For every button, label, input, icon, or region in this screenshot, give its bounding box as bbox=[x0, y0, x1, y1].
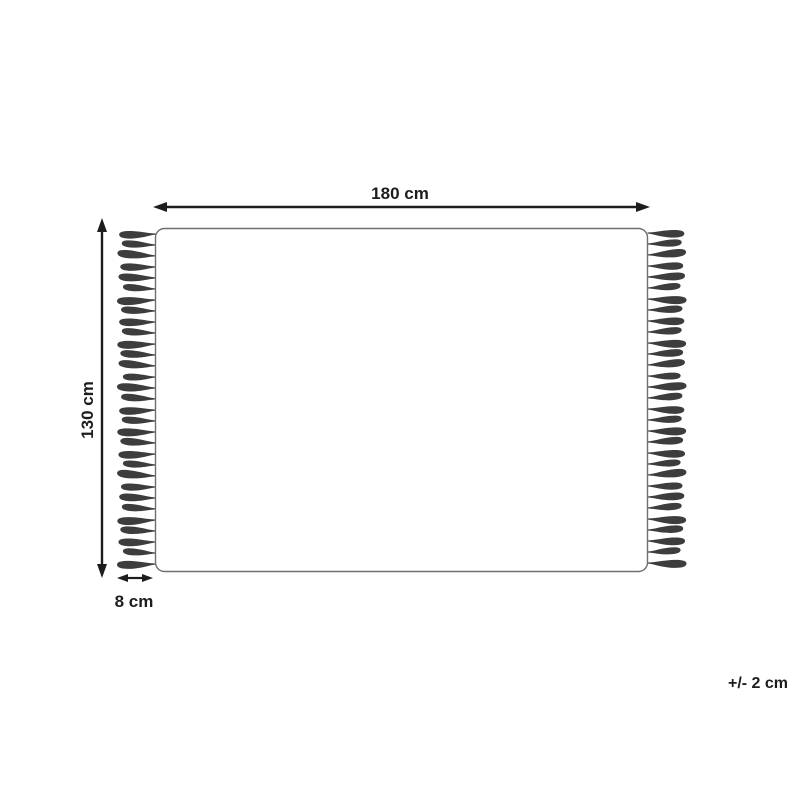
rug-outline bbox=[156, 229, 648, 572]
tassel bbox=[647, 239, 681, 247]
product-dimension-diagram: 180 cm 130 cm 8 cm +/- 2 cm bbox=[0, 0, 800, 800]
tassel bbox=[647, 468, 686, 478]
arrowhead-left-icon bbox=[153, 202, 167, 212]
arrowhead-left-small-icon bbox=[117, 574, 128, 582]
tassel bbox=[647, 359, 685, 369]
tassel bbox=[123, 548, 156, 556]
tassel bbox=[647, 372, 680, 380]
tassel bbox=[647, 437, 683, 446]
tassel bbox=[647, 415, 681, 423]
tassel bbox=[647, 327, 681, 335]
width-dimension-arrow: 180 cm bbox=[153, 184, 650, 212]
tassel bbox=[118, 450, 156, 460]
tassel bbox=[647, 559, 686, 569]
tassel bbox=[122, 328, 156, 336]
fringe-length-label: 8 cm bbox=[115, 592, 154, 611]
right-fringe bbox=[647, 229, 686, 569]
tassel bbox=[123, 460, 156, 468]
tassel bbox=[117, 428, 156, 437]
tassel bbox=[647, 295, 686, 305]
tassel bbox=[647, 537, 685, 546]
tassel bbox=[647, 449, 685, 459]
tassel bbox=[647, 249, 686, 259]
left-fringe bbox=[117, 230, 156, 570]
tassel bbox=[647, 482, 682, 490]
dimension-diagram-svg: 180 cm 130 cm 8 cm +/- 2 cm bbox=[0, 0, 800, 800]
tassel bbox=[121, 306, 156, 314]
tassel bbox=[118, 538, 156, 547]
tassel bbox=[117, 516, 156, 526]
tolerance-label: +/- 2 cm bbox=[728, 675, 788, 692]
rug-rect bbox=[156, 229, 648, 572]
tassel bbox=[118, 273, 156, 281]
arrowhead-right-icon bbox=[636, 202, 650, 212]
arrowhead-up-icon bbox=[97, 218, 107, 232]
tassel bbox=[117, 469, 156, 479]
tassel bbox=[119, 406, 156, 416]
tassel bbox=[647, 305, 682, 313]
tassel bbox=[120, 350, 156, 358]
tassel bbox=[120, 438, 156, 447]
tassel bbox=[120, 526, 156, 534]
tassel bbox=[647, 547, 680, 555]
tassel bbox=[119, 493, 156, 501]
tassel bbox=[122, 504, 157, 513]
tassel bbox=[647, 503, 682, 512]
tassel bbox=[120, 263, 156, 271]
tassel bbox=[647, 492, 684, 500]
tassel bbox=[647, 525, 683, 533]
tassel bbox=[647, 229, 684, 238]
tassel bbox=[119, 318, 156, 327]
tassel bbox=[647, 405, 684, 415]
tassel bbox=[647, 382, 686, 391]
tassel bbox=[122, 416, 156, 424]
tassel bbox=[117, 340, 156, 350]
fringe-dimension-arrow: 8 cm bbox=[115, 574, 154, 611]
arrowhead-down-icon bbox=[97, 564, 107, 578]
tassel bbox=[647, 392, 682, 401]
height-dimension-arrow: 130 cm bbox=[78, 218, 107, 578]
tassel bbox=[123, 373, 156, 381]
height-dimension-label: 130 cm bbox=[78, 381, 97, 439]
tassel bbox=[117, 296, 156, 306]
tassel bbox=[647, 272, 685, 280]
tassel bbox=[121, 483, 156, 491]
tassel bbox=[647, 459, 680, 467]
tassel bbox=[117, 560, 156, 570]
width-dimension-label: 180 cm bbox=[371, 184, 429, 203]
tassel bbox=[647, 262, 683, 270]
arrowhead-right-small-icon bbox=[142, 574, 153, 582]
tassel bbox=[647, 349, 683, 357]
tassel bbox=[117, 383, 156, 392]
tassel bbox=[123, 284, 156, 292]
tassel bbox=[647, 339, 686, 349]
tassel bbox=[121, 393, 156, 402]
tassel bbox=[119, 230, 156, 239]
tassel bbox=[117, 250, 156, 260]
tassel bbox=[647, 427, 686, 436]
tassel bbox=[647, 515, 686, 525]
tassel bbox=[647, 283, 680, 291]
tassel bbox=[647, 317, 684, 326]
tassel bbox=[118, 360, 156, 370]
tassel bbox=[122, 240, 156, 248]
